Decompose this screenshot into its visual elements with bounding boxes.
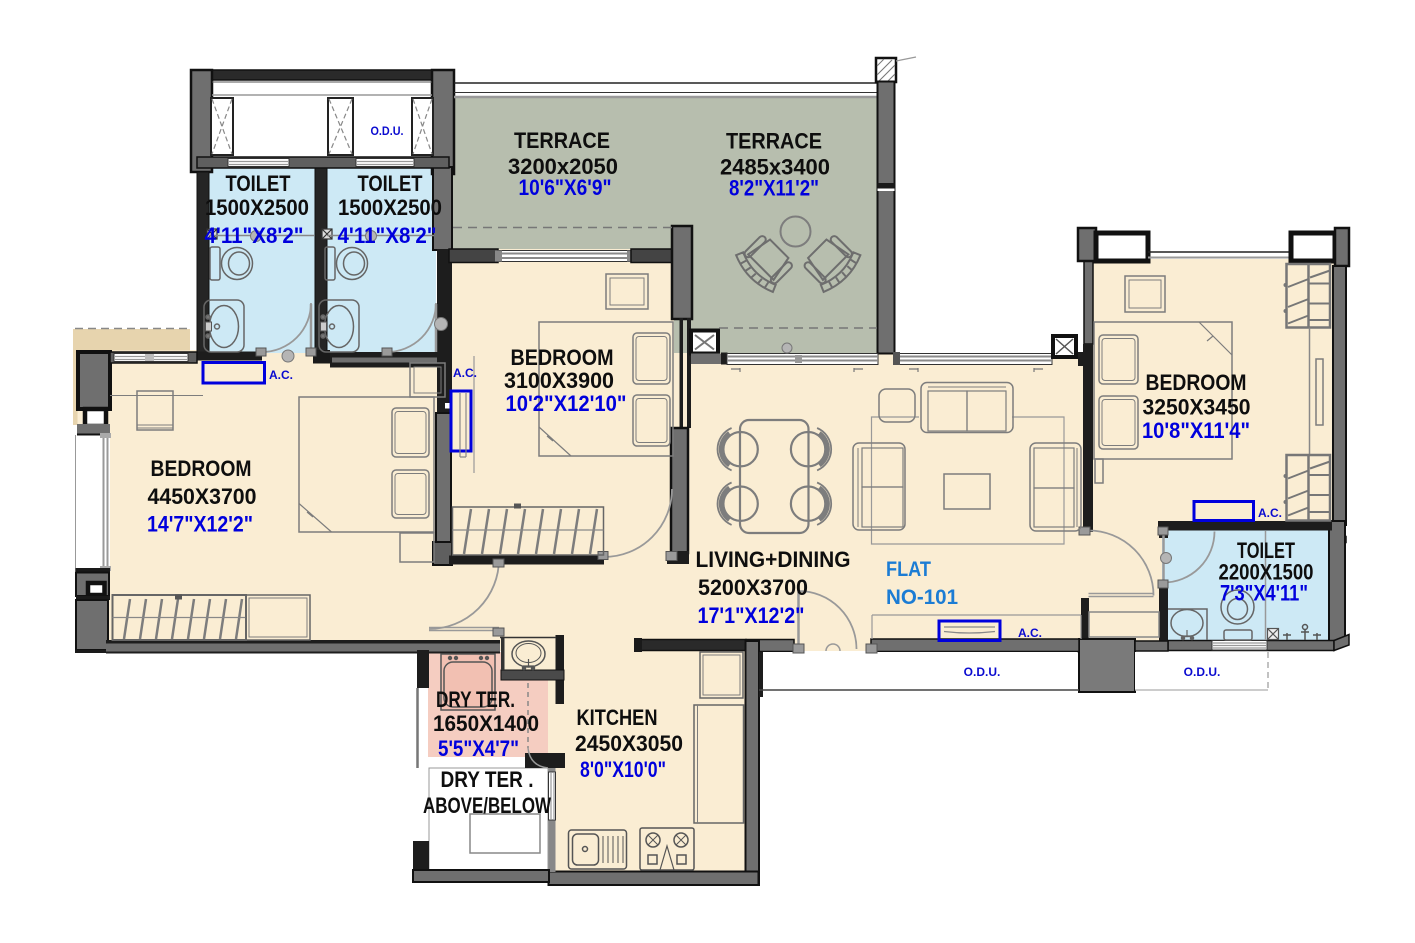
svg-text:10'2"X12'10": 10'2"X12'10" <box>506 391 627 416</box>
svg-text:1650X1400: 1650X1400 <box>433 711 539 736</box>
svg-text:ABOVE/BELOW: ABOVE/BELOW <box>423 793 552 818</box>
svg-text:FLAT: FLAT <box>886 558 931 581</box>
svg-text:4'11"X8'2": 4'11"X8'2" <box>338 223 437 248</box>
svg-text:10'6"X6'9": 10'6"X6'9" <box>519 175 612 200</box>
svg-text:3100X3900: 3100X3900 <box>504 368 614 393</box>
svg-text:NO-101: NO-101 <box>886 586 958 609</box>
svg-text:A.C.: A.C. <box>269 368 293 382</box>
svg-text:TOILET: TOILET <box>226 171 291 196</box>
svg-text:O.D.U.: O.D.U. <box>371 124 404 138</box>
svg-text:A.C.: A.C. <box>1018 626 1042 640</box>
svg-text:10'8"X11'4": 10'8"X11'4" <box>1142 418 1250 443</box>
svg-text:7'3"X4'11": 7'3"X4'11" <box>1220 581 1308 606</box>
svg-text:8'0"X10'0": 8'0"X10'0" <box>580 757 666 782</box>
svg-text:KITCHEN: KITCHEN <box>577 705 658 730</box>
svg-text:3250X3450: 3250X3450 <box>1143 395 1251 420</box>
svg-text:5'5"X4'7": 5'5"X4'7" <box>438 736 519 761</box>
svg-text:TOILET: TOILET <box>358 171 423 196</box>
svg-text:BEDROOM: BEDROOM <box>1146 370 1247 395</box>
svg-text:8'2"X11'2": 8'2"X11'2" <box>729 176 819 201</box>
svg-text:A.C.: A.C. <box>453 366 477 380</box>
svg-text:5200X3700: 5200X3700 <box>698 575 808 600</box>
svg-text:2450X3050: 2450X3050 <box>575 731 683 756</box>
svg-text:TERRACE: TERRACE <box>514 128 610 153</box>
svg-text:1500X2500: 1500X2500 <box>205 195 309 220</box>
svg-text:O.D.U.: O.D.U. <box>964 665 1001 679</box>
svg-text:DRY TER.: DRY TER. <box>436 687 515 712</box>
svg-text:BEDROOM: BEDROOM <box>511 345 614 370</box>
svg-text:4'11"X8'2": 4'11"X8'2" <box>205 223 304 248</box>
svg-text:14'7"X12'2": 14'7"X12'2" <box>147 512 253 537</box>
svg-text:O.D.U.: O.D.U. <box>1184 665 1221 679</box>
svg-text:4450X3700: 4450X3700 <box>148 484 257 509</box>
svg-text:TERRACE: TERRACE <box>726 129 822 154</box>
svg-text:1500X2500: 1500X2500 <box>338 195 442 220</box>
svg-text:A.C.: A.C. <box>1258 506 1282 520</box>
svg-text:LIVING+DINING: LIVING+DINING <box>696 547 851 572</box>
svg-text:DRY TER .: DRY TER . <box>441 767 534 792</box>
svg-text:BEDROOM: BEDROOM <box>151 456 252 481</box>
svg-text:17'1"X12'2": 17'1"X12'2" <box>698 603 805 628</box>
